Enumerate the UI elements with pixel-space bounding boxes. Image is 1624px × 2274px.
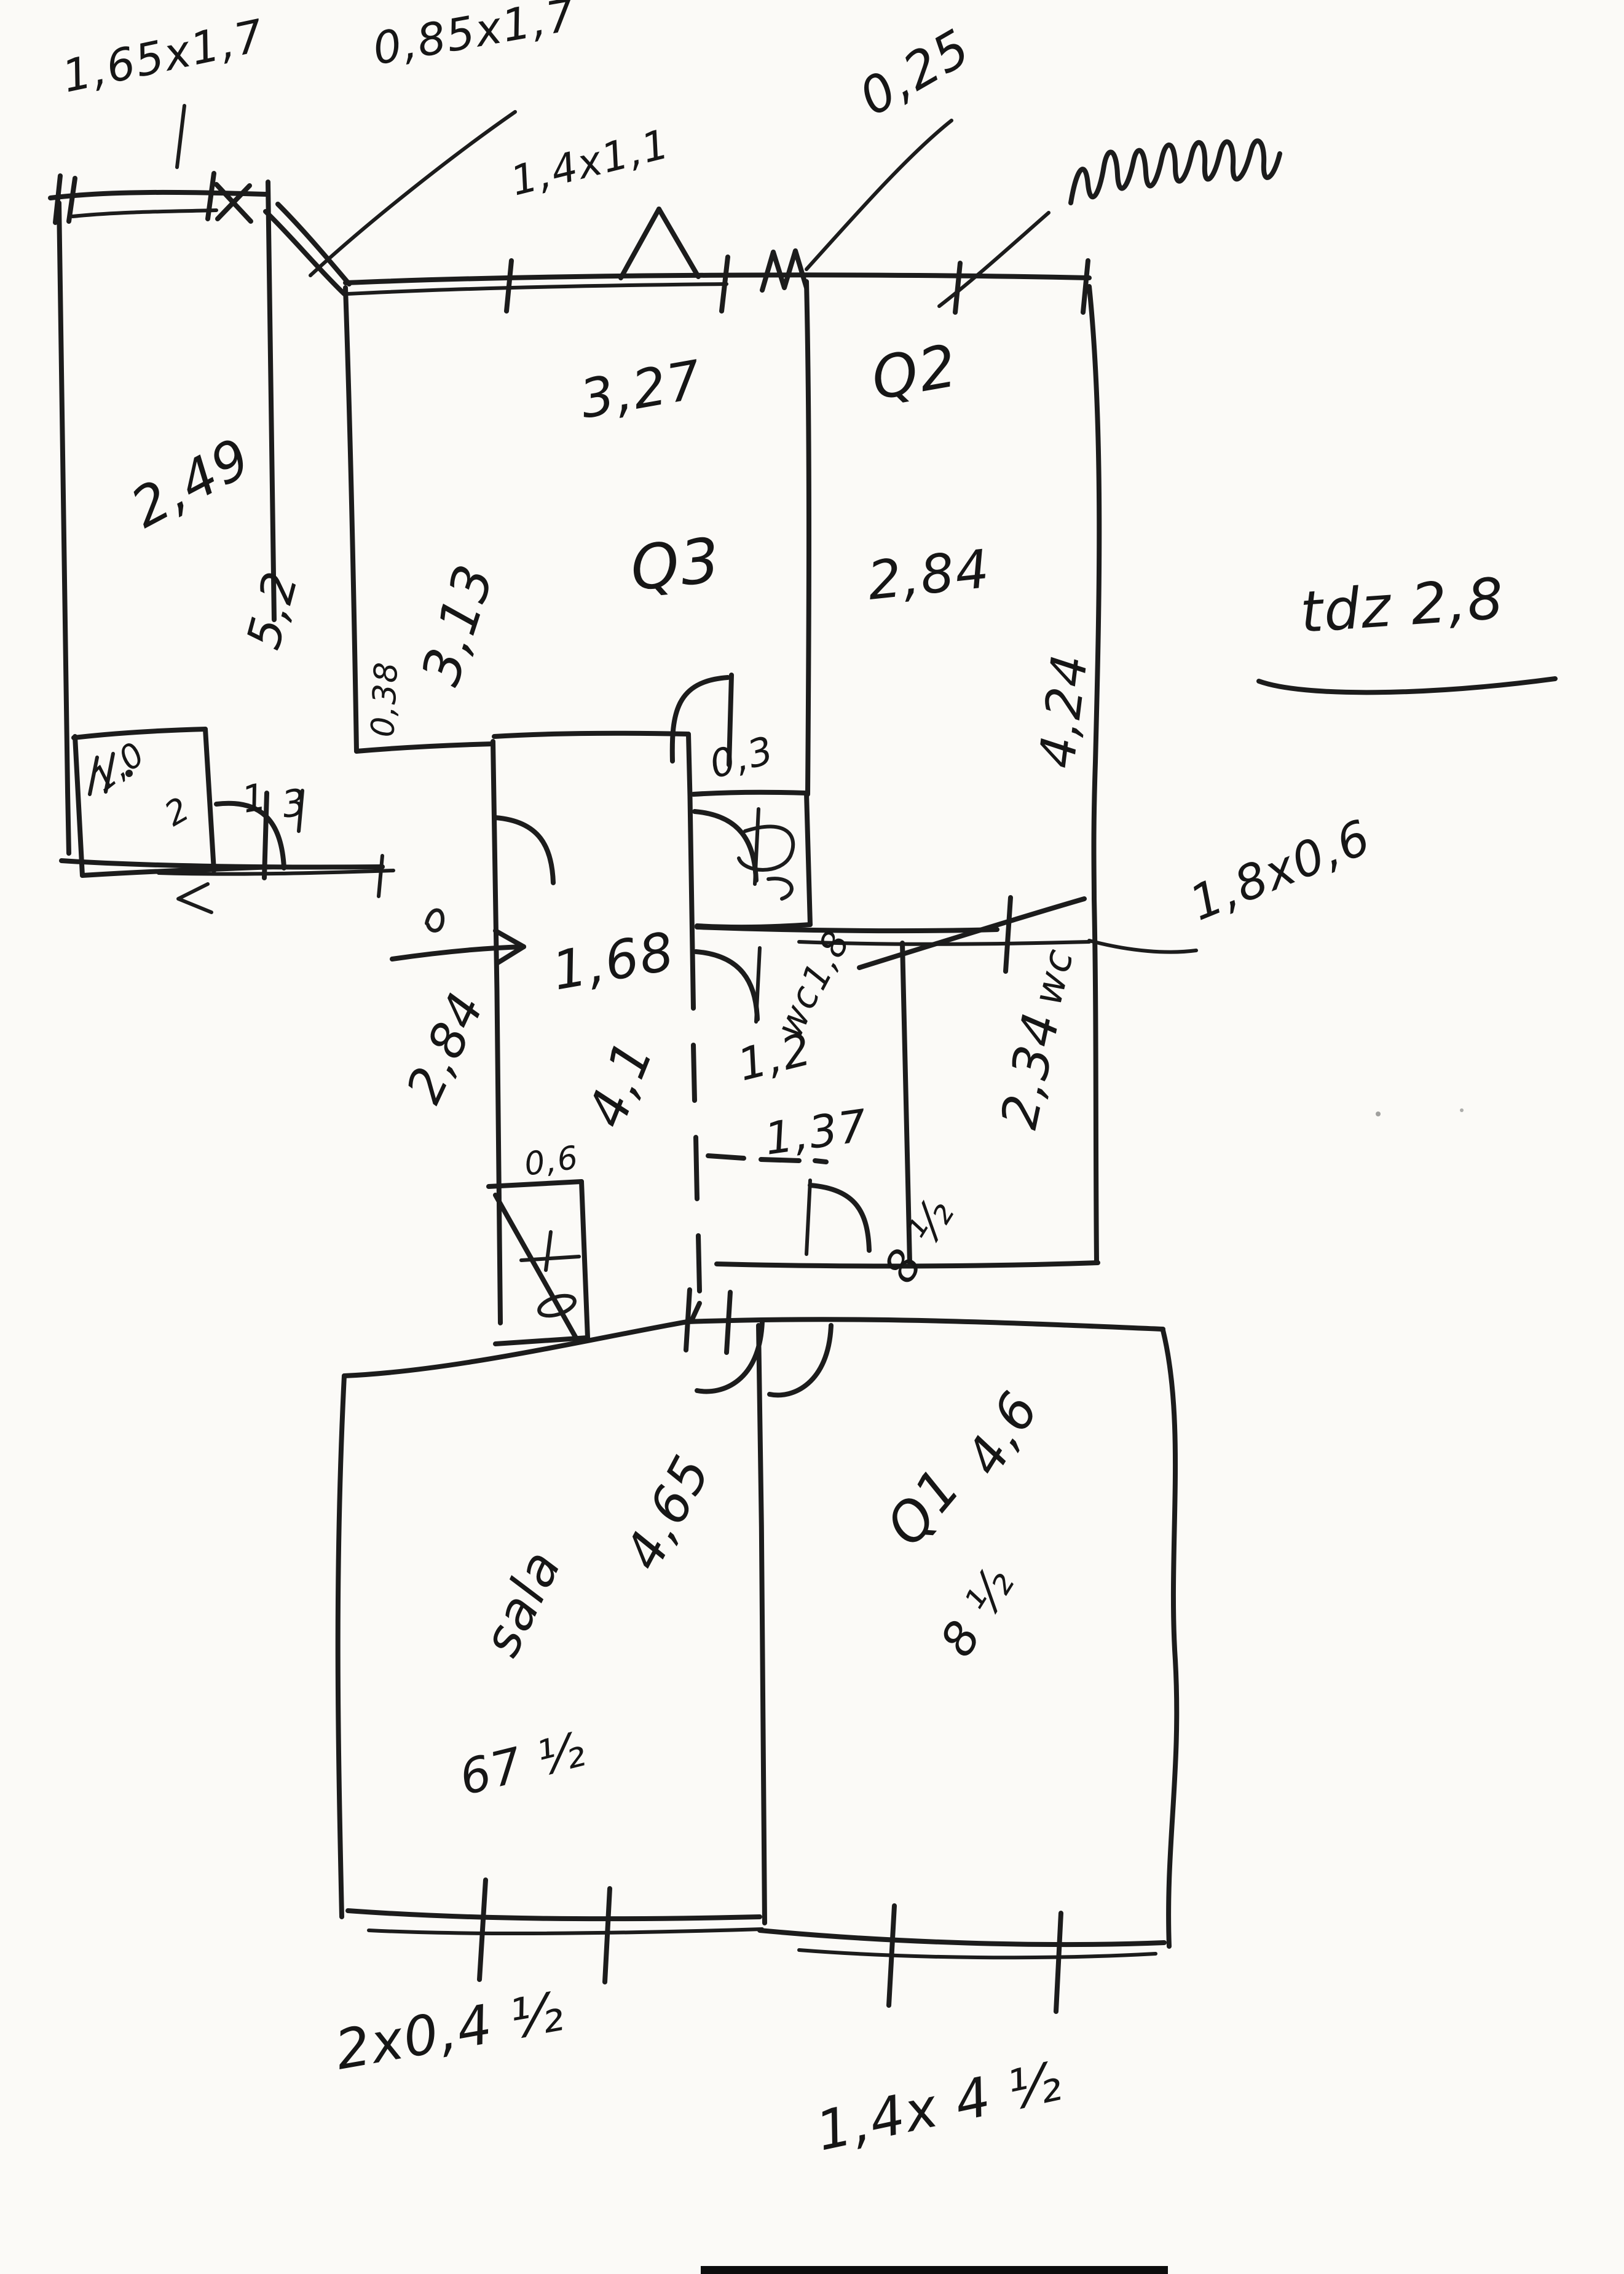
label-q1-85: 8 ½ bbox=[929, 1557, 1025, 1665]
label-wc1-12: 1,2 bbox=[733, 1023, 817, 1091]
wc-door-tick bbox=[806, 1180, 810, 1254]
hall-dash-3 bbox=[698, 1236, 700, 1291]
nook-swirl-1 bbox=[739, 826, 793, 870]
wall-room1-bottom-1 bbox=[61, 861, 382, 867]
cupboard-right bbox=[581, 1182, 588, 1338]
scanned-paper: 1,65x1,7 0,85x1,7 1,4x1,1 0,25 2,49 5,2 … bbox=[0, 0, 1624, 2274]
hall-door-arc-2 bbox=[696, 952, 757, 1019]
hall-wall-right-top bbox=[688, 734, 693, 1008]
leader-085 bbox=[310, 112, 515, 275]
label-q2-name: Q2 bbox=[867, 332, 963, 414]
q1-window-tick-1 bbox=[889, 1906, 894, 2005]
wall-q2-right bbox=[1089, 286, 1099, 899]
wc-right-wall bbox=[1094, 899, 1097, 1261]
label-q1-46: 4,6 bbox=[954, 1381, 1050, 1485]
hall-door-arc-1 bbox=[695, 811, 756, 880]
dimline-top-left-second bbox=[73, 210, 216, 216]
label-hall-168: 1,68 bbox=[548, 921, 679, 1003]
label-sala-name: sala bbox=[471, 1541, 573, 1665]
tick-1185 bbox=[727, 1292, 730, 1352]
window-triangle-2 bbox=[659, 209, 698, 277]
q2-door-tick bbox=[1006, 898, 1011, 971]
hall-top-wall bbox=[494, 733, 687, 736]
tick-1180 bbox=[722, 257, 728, 311]
wall-sala-bottom-1 bbox=[348, 1911, 760, 1919]
bottomrooms-top-wall-left bbox=[344, 1322, 687, 1376]
wc1-dash-bottom-3 bbox=[815, 1161, 826, 1162]
ink-speck-1 bbox=[1376, 1111, 1381, 1116]
wall-sala-q1-divider bbox=[759, 1325, 765, 1923]
label-q1-name: Q1 bbox=[873, 1456, 973, 1557]
nook-top bbox=[693, 792, 806, 794]
label-mark-1: 1 bbox=[238, 775, 270, 822]
scan-edge-artifact bbox=[701, 2266, 1168, 2274]
cupboard-mark bbox=[546, 1232, 551, 1270]
tick-1120 bbox=[686, 1290, 690, 1350]
ink-speck-2 bbox=[1460, 1108, 1464, 1112]
window-triangle-1 bbox=[621, 209, 659, 278]
arrow-v-mark bbox=[178, 884, 211, 912]
hall-dash-2 bbox=[696, 1137, 697, 1199]
label-hall-038: 0,38 bbox=[365, 660, 405, 738]
scribble-word bbox=[1071, 141, 1280, 203]
bottom-door-arc-2 bbox=[770, 1325, 831, 1395]
m-mark bbox=[762, 251, 806, 290]
label-dim-025: 0,25 bbox=[850, 18, 981, 128]
hall-door-arc-left bbox=[495, 818, 553, 883]
label-window-085x17: 0,85x1,7 bbox=[369, 0, 580, 75]
entrance-arrow-head-1 bbox=[495, 931, 524, 947]
wall-q1-bottom-2 bbox=[799, 1950, 1156, 1957]
hall-wall-right-low bbox=[692, 1303, 700, 1319]
nook-right bbox=[806, 793, 810, 925]
wall-q1-bottom-1 bbox=[760, 1930, 1164, 1944]
wall-sala-bottom-2 bbox=[369, 1929, 762, 1933]
label-q3-name: Q3 bbox=[627, 524, 724, 605]
walls bbox=[50, 106, 1555, 2274]
label-mid-85: 8 ½ bbox=[873, 1189, 964, 1292]
label-hall-03: 0,3 bbox=[705, 727, 779, 788]
tick-830 bbox=[507, 261, 511, 311]
label-q2-284: 2,84 bbox=[865, 539, 993, 612]
tick-stray bbox=[177, 106, 184, 167]
wall-q3-left bbox=[345, 288, 357, 751]
label-q3-313: 3,13 bbox=[410, 557, 507, 693]
label-q3-327: 3,27 bbox=[575, 349, 707, 431]
cupboard-top bbox=[489, 1182, 581, 1186]
leader-18x06 bbox=[1089, 941, 1196, 952]
closet-left bbox=[75, 736, 82, 875]
wall-q3-bottom-left bbox=[357, 744, 493, 751]
label-window-2x045: 2x0,4 ½ bbox=[331, 1980, 569, 2082]
wall-sala-left bbox=[338, 1376, 344, 1917]
nook-bottom bbox=[697, 925, 810, 927]
closet-top bbox=[74, 729, 205, 738]
sala-window-tick-2 bbox=[605, 1889, 610, 1982]
label-hall-284: 2,84 bbox=[395, 984, 495, 1111]
closet-right bbox=[205, 729, 214, 871]
tdz-underline bbox=[1259, 679, 1555, 692]
wall-q3-q2-divider bbox=[806, 282, 809, 794]
label-q2-424: 4,24 bbox=[1028, 650, 1099, 771]
wc-door-arc bbox=[810, 1185, 869, 1250]
label-window-14x45: 1,4x 4 ½ bbox=[811, 2050, 1068, 2163]
label-closet-10: 1,0 bbox=[84, 734, 152, 799]
label-wc2-wc: wc bbox=[1025, 944, 1083, 1009]
sala-window-tick-1 bbox=[479, 1880, 486, 1980]
cupboard-diagonal bbox=[495, 1195, 577, 1339]
nook-swirl-2 bbox=[768, 878, 792, 899]
label-hall-41: 4,1 bbox=[576, 1032, 666, 1136]
hall-door-tick-2 bbox=[756, 948, 760, 1022]
label-wc1-137: 1,37 bbox=[762, 1099, 871, 1165]
dimline-top-left bbox=[50, 192, 266, 198]
label-cupboard-06: 0,6 bbox=[522, 1139, 581, 1183]
label-sala-675: 67 ½ bbox=[454, 1722, 591, 1807]
label-window-165x17: 1,65x1,7 bbox=[58, 9, 269, 102]
hall-wall-left bbox=[493, 741, 500, 1323]
labels: 1,65x1,7 0,85x1,7 1,4x1,1 0,25 2,49 5,2 … bbox=[58, 0, 1507, 2163]
leader-025 bbox=[806, 120, 952, 269]
wc1-dash-bottom-1 bbox=[708, 1156, 744, 1158]
leader-scribble bbox=[939, 213, 1049, 306]
wall-room1-inner bbox=[268, 182, 274, 620]
label-note-tdz: tdz 2,8 bbox=[1298, 566, 1507, 645]
tick-620 bbox=[379, 856, 382, 896]
q1-window-tick-2 bbox=[1056, 1913, 1061, 2011]
wall-q1-right bbox=[1163, 1330, 1177, 1946]
entrance-curl bbox=[427, 910, 443, 930]
hall-dash-1 bbox=[693, 1045, 695, 1100]
label-mark-3: 3 bbox=[279, 781, 310, 827]
label-room1-249: 2,49 bbox=[121, 425, 261, 540]
label-wc2-234: 2,34 bbox=[990, 1007, 1072, 1134]
label-room1-52: 5,2 bbox=[235, 565, 309, 655]
wall-top-second bbox=[348, 284, 727, 294]
label-closet-2: 2 bbox=[158, 789, 197, 834]
label-sala-465: 4,65 bbox=[613, 1445, 722, 1579]
label-window-14x11: 1,4x1,1 bbox=[506, 120, 674, 205]
door-diag-1 bbox=[266, 211, 344, 294]
floor-plan-sketch: 1,65x1,7 0,85x1,7 1,4x1,1 0,25 2,49 5,2 … bbox=[0, 0, 1624, 2274]
wall-room1-left bbox=[59, 203, 69, 853]
label-dim-18x06: 1,8x0,6 bbox=[1182, 810, 1379, 932]
